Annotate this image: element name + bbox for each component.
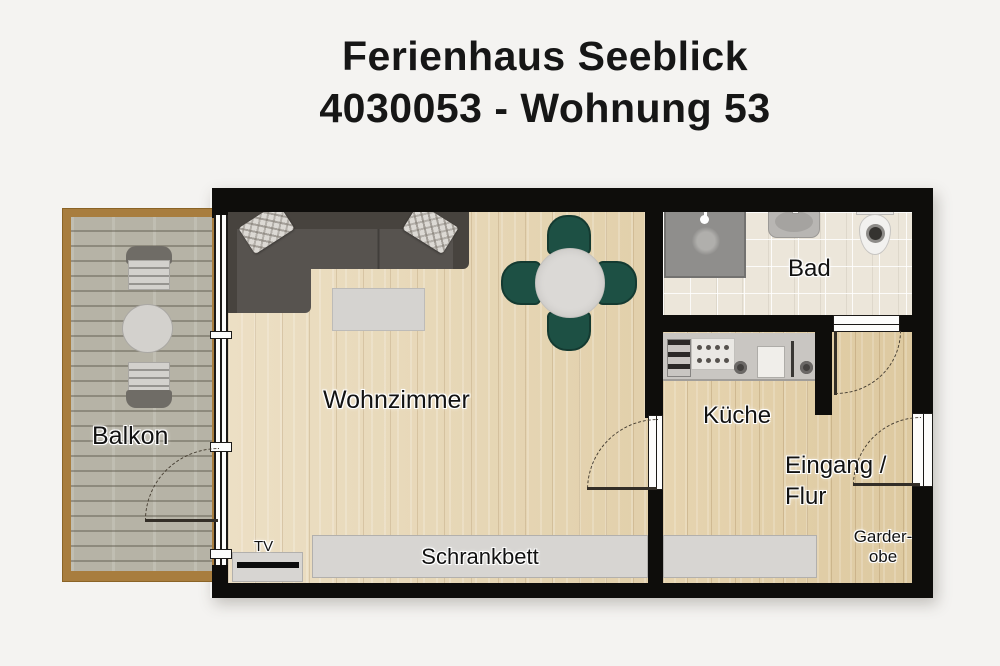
- wall: [912, 188, 933, 415]
- floor-plan-page: Ferienhaus Seeblick 4030053 - Wohnung 53…: [0, 0, 1000, 666]
- room-label-kueche: Küche: [703, 402, 771, 430]
- balcony-chair-back: [126, 390, 172, 408]
- schrankbett-label: Schrankbett: [421, 544, 538, 570]
- wall: [212, 188, 228, 218]
- stove-burner: [800, 361, 813, 374]
- wall: [815, 315, 832, 415]
- tv-screen: [237, 562, 299, 568]
- shower-drain: [692, 227, 720, 255]
- sink-basin: [775, 211, 813, 232]
- counter-divider: [791, 341, 794, 377]
- room-label-bad: Bad: [788, 255, 831, 283]
- door-leaf-living: [587, 487, 657, 490]
- tv-label: TV: [254, 538, 273, 555]
- door-frame-line: [923, 414, 925, 486]
- door-frame-line: [834, 324, 899, 326]
- toilet-bowl: [869, 227, 882, 240]
- kitchen-grill: [667, 339, 691, 377]
- room-label-garderobe: Garder- obe: [843, 527, 923, 567]
- door-frame-bath: [833, 315, 900, 332]
- schrankbett-murphy-bed: Schrankbett: [312, 535, 648, 578]
- dining-table: [535, 248, 605, 318]
- balcony-table: [122, 304, 173, 353]
- balcony-chair: [128, 260, 170, 290]
- kitchen-sink: [757, 346, 785, 378]
- window-post: [210, 549, 232, 559]
- garderobe-line-1: Garder-: [843, 527, 923, 547]
- wall: [663, 315, 833, 332]
- coffee-table: [332, 288, 425, 331]
- hallway-cabinet: [663, 535, 817, 578]
- title-line-1: Ferienhaus Seeblick: [45, 30, 1000, 82]
- room-label-balkon: Balkon: [92, 422, 168, 451]
- sofa-armrest: [452, 203, 469, 269]
- door-leaf-entrance: [853, 483, 920, 486]
- cooktop-knobs: [697, 345, 702, 350]
- garderobe-line-2: obe: [843, 547, 923, 567]
- page-title: Ferienhaus Seeblick 4030053 - Wohnung 53: [45, 30, 1000, 134]
- wall: [212, 188, 933, 212]
- shower-head-icon: [700, 215, 709, 224]
- title-line-2: 4030053 - Wohnung 53: [45, 82, 1000, 134]
- wall: [212, 565, 228, 598]
- balcony-chair: [128, 362, 170, 392]
- eingang-line-2: Flur: [785, 481, 886, 512]
- wall: [212, 583, 933, 598]
- room-label-wohnzimmer: Wohnzimmer: [323, 386, 470, 415]
- wall: [900, 315, 912, 332]
- window-post: [210, 331, 232, 339]
- wall: [645, 212, 663, 418]
- wall: [648, 488, 663, 583]
- window-mullion: [220, 215, 222, 565]
- wall: [912, 485, 933, 598]
- cooktop-knob-panel: [691, 338, 735, 370]
- door-leaf-balcony: [145, 519, 218, 522]
- stove-burner: [734, 361, 747, 374]
